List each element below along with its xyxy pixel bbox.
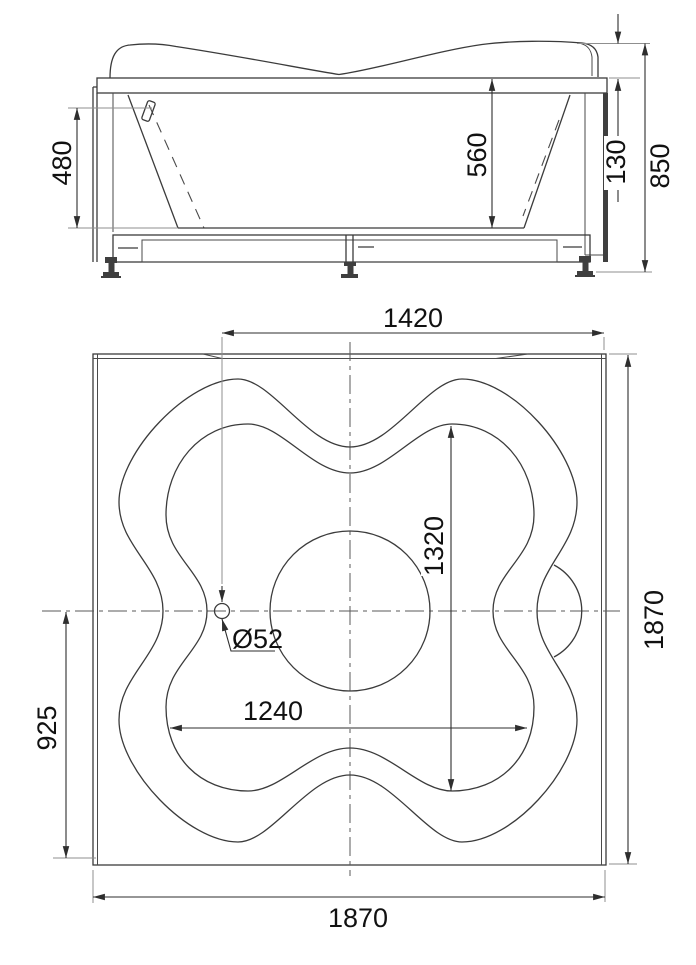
foot-right xyxy=(575,256,595,277)
dim-label-1870-right: 1870 xyxy=(639,590,669,650)
dim-label-1870-bottom: 1870 xyxy=(328,903,388,933)
left-wall xyxy=(93,87,97,262)
dim-label-925: 925 xyxy=(32,705,62,750)
basin-slope-left-hidden xyxy=(149,105,204,228)
frame-panel xyxy=(142,240,557,262)
foot-center xyxy=(341,262,358,278)
dim-label-1320: 1320 xyxy=(419,516,449,576)
dim-label-560: 560 xyxy=(462,132,492,177)
dimension-1240: 1240 xyxy=(170,696,527,728)
foot-left xyxy=(101,257,121,278)
adjustable-feet xyxy=(101,256,595,278)
drawing-sheet: 480 560 130 850 xyxy=(0,0,696,965)
frame-center-column xyxy=(346,235,353,262)
bathtub-technical-drawing: 480 560 130 850 xyxy=(0,0,696,965)
frame-outline xyxy=(113,235,590,262)
base-frame xyxy=(113,235,590,262)
centerlines xyxy=(42,342,620,876)
dimension-drain: Ø52 xyxy=(222,619,283,654)
dim-label-850: 850 xyxy=(645,143,675,188)
basin-slope-right xyxy=(524,95,570,228)
front-elevation-view: 480 560 130 850 xyxy=(47,14,675,278)
dimension-1870-bottom: 1870 xyxy=(93,870,605,933)
dimension-130: 130 xyxy=(577,14,650,202)
basin-slope-right-hidden xyxy=(523,120,559,216)
dimension-1320: 1320 xyxy=(419,426,451,791)
dimension-925: 925 xyxy=(32,612,96,858)
dimension-560: 560 xyxy=(462,79,492,228)
dimension-1870-right: 1870 xyxy=(609,354,669,864)
dim-label-1240: 1240 xyxy=(243,696,303,726)
dim-label-480: 480 xyxy=(47,140,77,185)
rim-deck-band xyxy=(97,78,607,93)
deck-edge-breaks xyxy=(203,354,528,359)
tub-body-outline xyxy=(93,41,608,262)
frame-clips xyxy=(118,247,582,248)
jet-fitting xyxy=(141,100,155,122)
top-plan-view: 1420 Ø52 1320 1240 925 1870 xyxy=(32,303,669,933)
dim-label-130: 130 xyxy=(601,139,631,184)
headrest-wave-profile xyxy=(110,41,598,78)
dim-label-drain-diameter: Ø52 xyxy=(232,624,283,654)
dimension-1420: 1420 xyxy=(222,303,604,602)
headrest-inner-corner xyxy=(581,44,592,77)
dim-label-1420: 1420 xyxy=(383,303,443,333)
